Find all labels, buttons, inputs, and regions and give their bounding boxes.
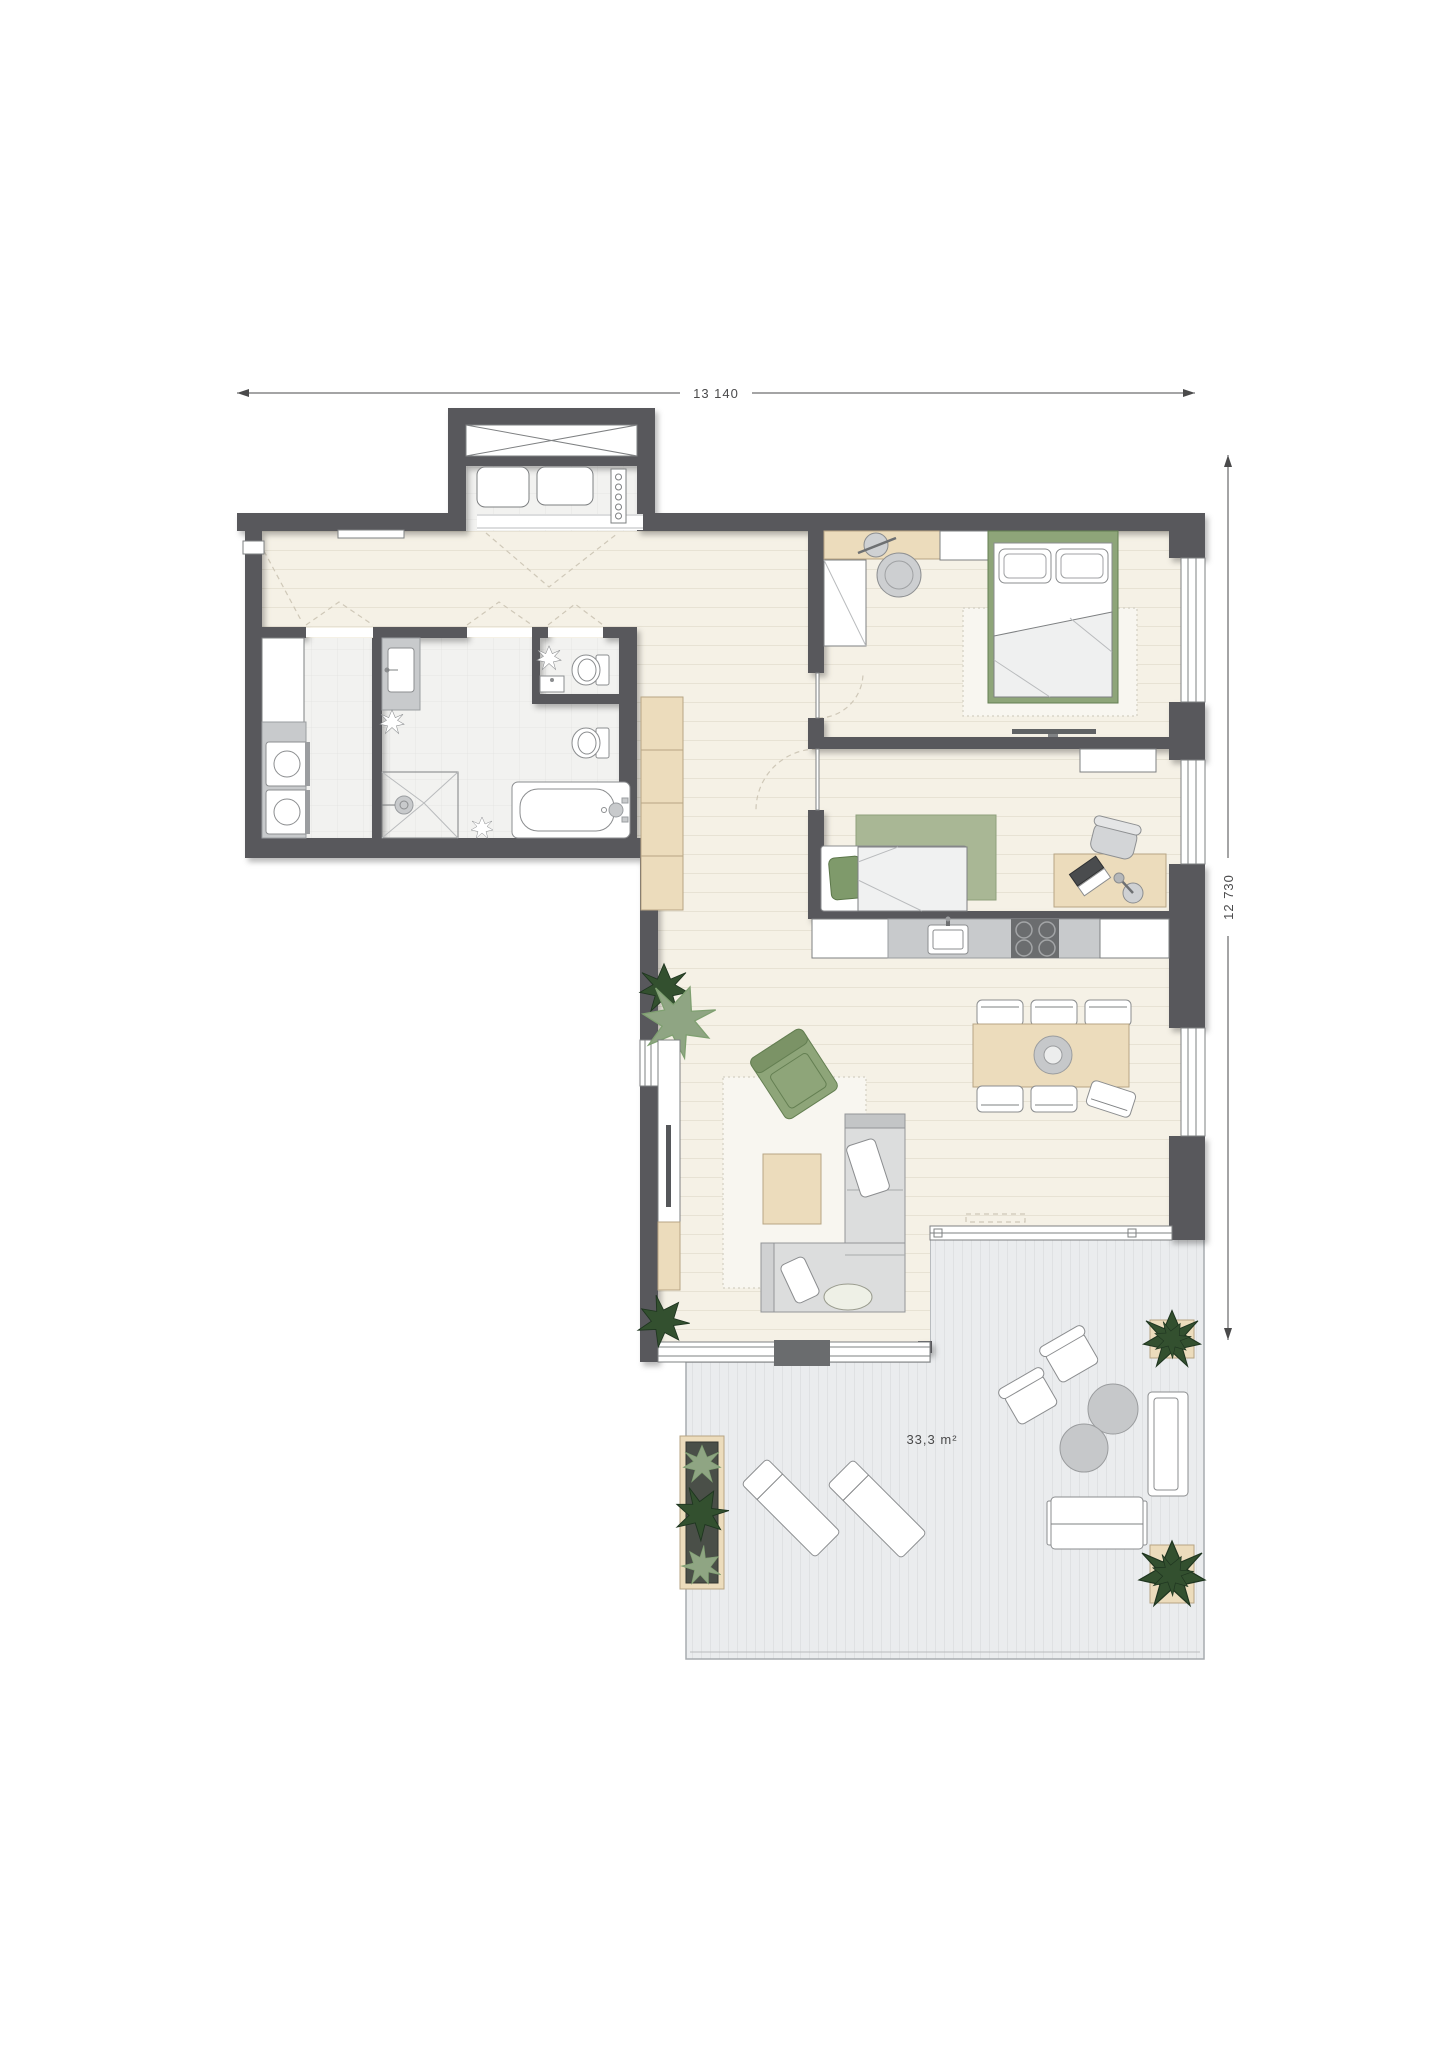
second-bedroom-door xyxy=(816,749,819,810)
round-cushion xyxy=(824,1284,872,1310)
terrace-bench xyxy=(1047,1497,1147,1549)
kitchen-counter xyxy=(888,919,1100,958)
floor-plan-page: 33,3 m² 13 140 12 730 xyxy=(0,0,1448,2048)
bathtub xyxy=(512,782,630,838)
tv-sideboard xyxy=(658,1040,680,1290)
kitchen-cabinet xyxy=(1100,919,1169,958)
dimension-width: 13 140 xyxy=(237,385,1195,401)
single-bed xyxy=(821,846,967,911)
toilet-bathroom xyxy=(572,728,609,758)
window-second-bedroom xyxy=(1181,760,1205,864)
dimension-width-label: 13 140 xyxy=(693,386,739,401)
side-table xyxy=(1060,1424,1108,1472)
double-bed xyxy=(988,531,1118,703)
terrace-sofa xyxy=(1148,1392,1188,1496)
tv-icon xyxy=(666,1125,671,1207)
stove xyxy=(1011,919,1059,958)
dining-chair xyxy=(1085,1000,1131,1026)
utility-room xyxy=(262,638,310,838)
kitchen xyxy=(812,917,1169,959)
dimension-height-label: 12 730 xyxy=(1221,874,1236,920)
tv-icon xyxy=(1012,729,1096,734)
dimension-height: 12 730 xyxy=(1220,455,1236,1340)
dresser xyxy=(1080,749,1156,772)
fruit-bowl-icon xyxy=(1034,1036,1072,1074)
terrace-area-label: 33,3 m² xyxy=(906,1432,957,1447)
vanity-sink xyxy=(382,638,420,710)
dining-chair xyxy=(1031,1000,1077,1026)
nightstand xyxy=(940,531,988,560)
doormat xyxy=(537,467,593,505)
toilet-wc xyxy=(572,655,609,685)
console-shelf xyxy=(338,530,404,538)
office-chair xyxy=(877,553,921,597)
dining-chair xyxy=(977,1000,1023,1026)
terrace-sliding-door xyxy=(930,1226,1172,1240)
window-master-bedroom xyxy=(1181,558,1205,702)
window-living-room xyxy=(1181,1028,1205,1136)
dining-chair xyxy=(977,1086,1023,1112)
window-living-west xyxy=(640,1040,658,1086)
hallway-closet xyxy=(641,697,683,910)
utility-cabinet xyxy=(262,638,304,722)
coffee-table xyxy=(763,1154,821,1224)
floor-plan-drawing: 33,3 m² 13 140 12 730 xyxy=(0,0,1448,2048)
entrance-window-x xyxy=(466,425,637,456)
doormat xyxy=(477,467,529,507)
intercom-panel xyxy=(611,469,626,523)
kitchen-cabinet xyxy=(812,919,888,958)
dryer xyxy=(266,790,310,834)
dining-chair xyxy=(1031,1086,1077,1112)
terrace-door-step xyxy=(774,1340,830,1366)
desk xyxy=(1054,854,1166,907)
washing-machine xyxy=(266,742,310,786)
duvet xyxy=(858,847,967,911)
master-bedroom-door xyxy=(816,673,819,718)
window-living-south xyxy=(658,1340,930,1366)
dining-area xyxy=(973,1000,1137,1118)
shower-head-icon xyxy=(395,796,413,814)
